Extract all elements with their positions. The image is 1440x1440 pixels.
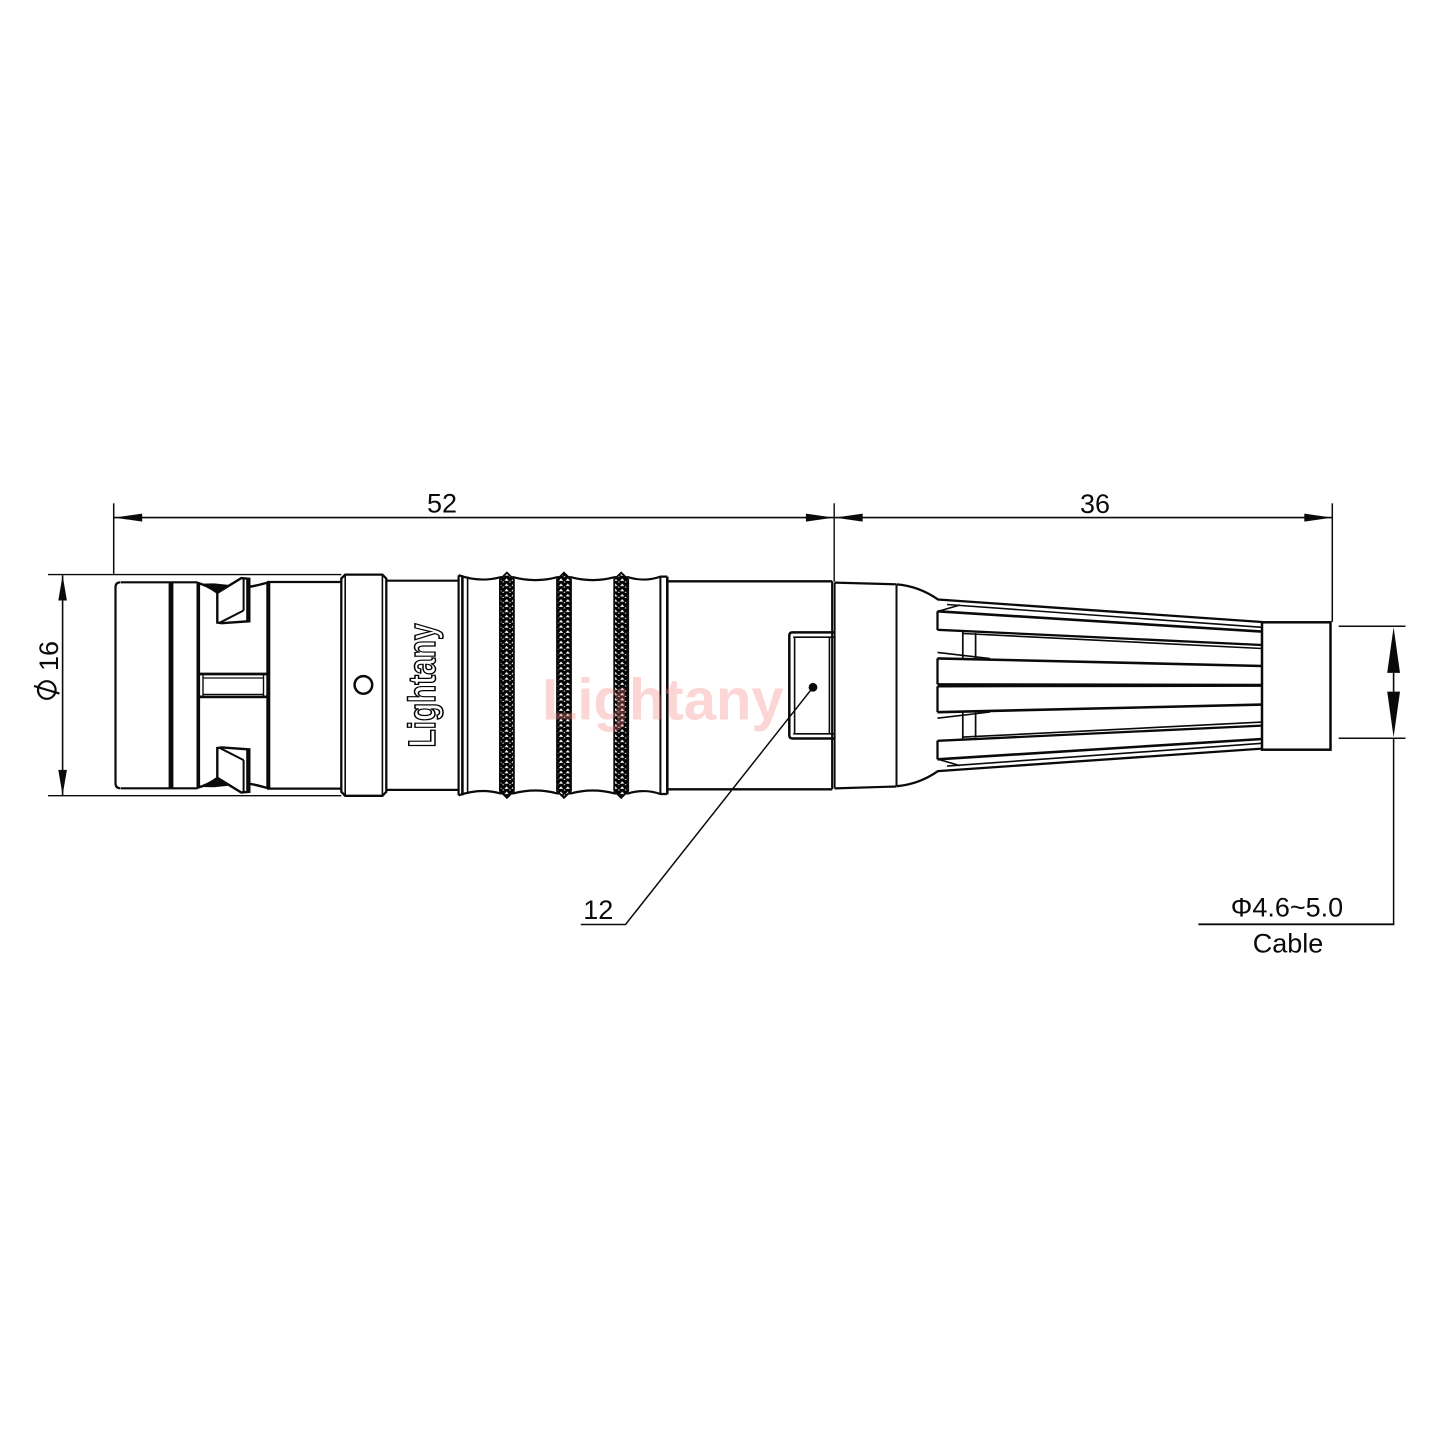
svg-text:16: 16 [34,641,64,671]
svg-text:12: 12 [583,895,613,925]
svg-text:Lightany: Lightany [402,624,444,748]
svg-text:36: 36 [1080,489,1110,519]
svg-text:Cable: Cable [1253,929,1324,959]
svg-text:Lightany: Lightany [542,668,784,733]
svg-text:Φ4.6~5.0: Φ4.6~5.0 [1231,893,1343,923]
svg-text:52: 52 [427,488,457,518]
